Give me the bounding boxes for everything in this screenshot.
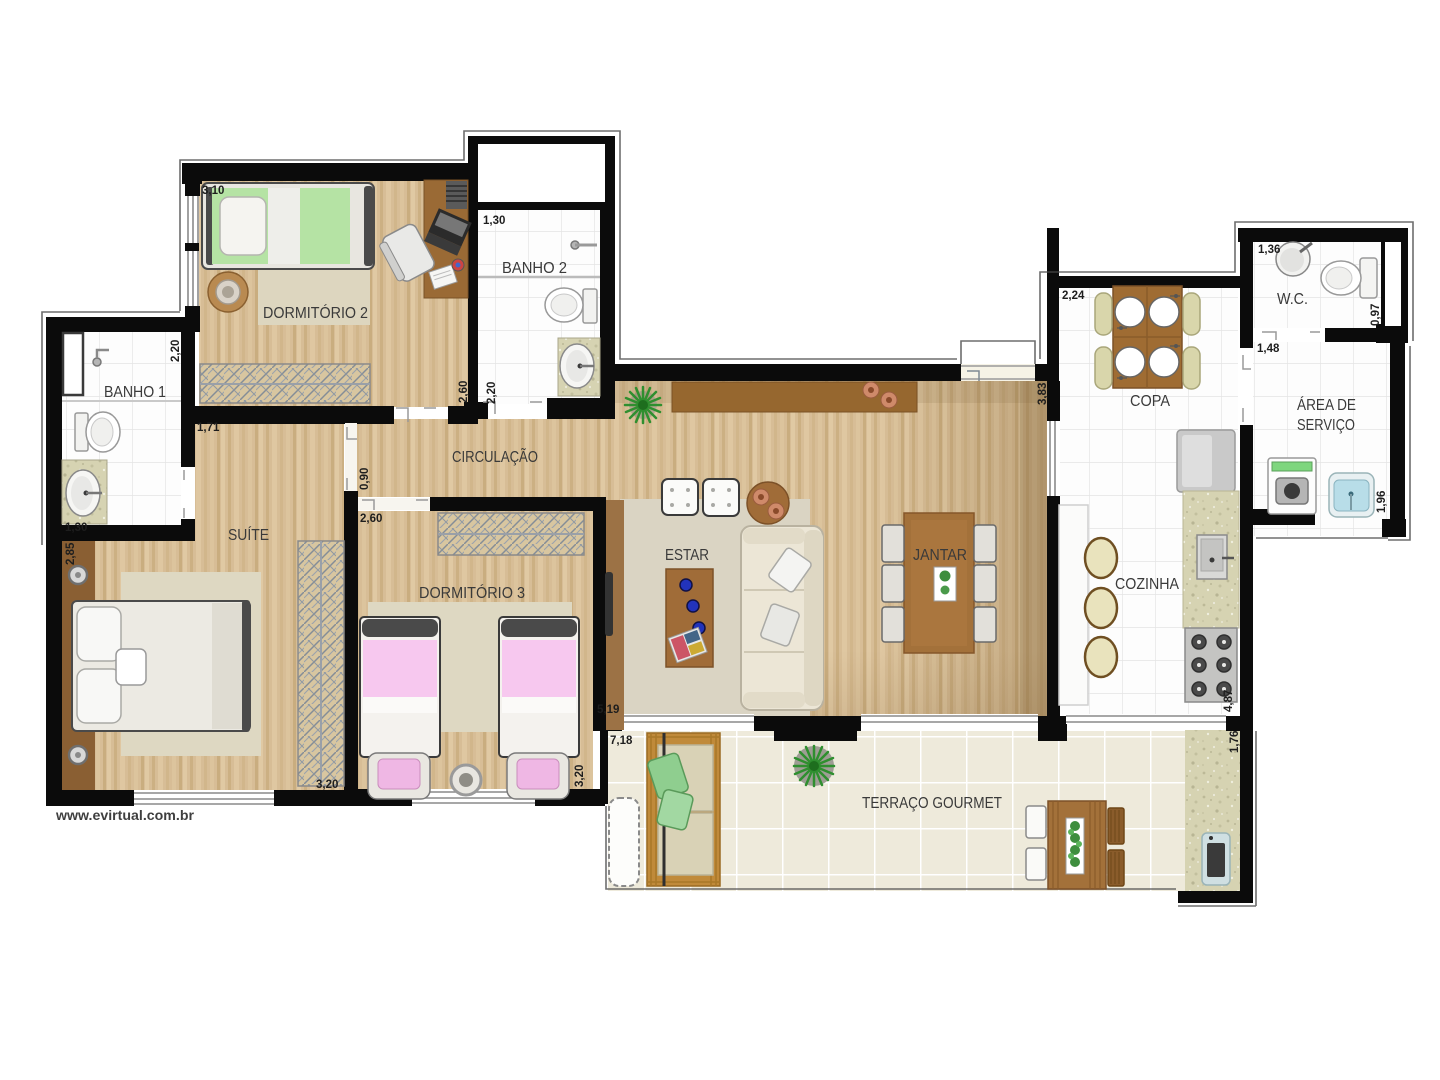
svg-text:1,30: 1,30 — [65, 522, 87, 534]
svg-text:1,36: 1,36 — [1258, 244, 1280, 256]
svg-text:2,20: 2,20 — [170, 340, 182, 362]
svg-text:TERRAÇO GOURMET: TERRAÇO GOURMET — [862, 795, 1002, 812]
svg-text:0,97: 0,97 — [1370, 304, 1382, 326]
svg-text:7,18: 7,18 — [610, 735, 633, 747]
svg-text:SERVIÇO: SERVIÇO — [1297, 417, 1355, 434]
svg-text:BANHO 2: BANHO 2 — [502, 260, 567, 277]
svg-text:1,30: 1,30 — [483, 215, 505, 227]
svg-text:SUÍTE: SUÍTE — [228, 527, 269, 544]
svg-text:DORMITÓRIO 3: DORMITÓRIO 3 — [419, 585, 525, 602]
svg-text:W.C.: W.C. — [1277, 291, 1308, 308]
svg-text:COZINHA: COZINHA — [1115, 576, 1180, 593]
svg-text:CIRCULAÇÃO: CIRCULAÇÃO — [452, 449, 538, 466]
svg-text:ESTAR: ESTAR — [665, 547, 709, 564]
svg-text:1,48: 1,48 — [1257, 343, 1280, 355]
svg-text:0,90: 0,90 — [359, 468, 371, 490]
svg-text:3,10: 3,10 — [202, 185, 224, 197]
svg-text:1,96: 1,96 — [1376, 491, 1388, 513]
svg-text:2,85: 2,85 — [65, 542, 77, 565]
svg-text:3,20: 3,20 — [574, 765, 586, 787]
svg-text:3,83: 3,83 — [1037, 383, 1049, 405]
svg-text:5,19: 5,19 — [597, 704, 619, 716]
svg-text:1,76: 1,76 — [1229, 731, 1241, 753]
svg-text:1,71: 1,71 — [197, 422, 220, 434]
svg-text:4,87: 4,87 — [1223, 690, 1235, 712]
svg-text:COPA: COPA — [1130, 393, 1171, 410]
svg-text:ÁREA DE: ÁREA DE — [1297, 397, 1356, 414]
svg-text:JANTAR: JANTAR — [913, 547, 967, 564]
svg-text:3,20: 3,20 — [316, 779, 338, 791]
svg-text:2,24: 2,24 — [1062, 290, 1085, 302]
svg-text:www.evirtual.com.br: www.evirtual.com.br — [55, 808, 195, 823]
svg-text:2,60: 2,60 — [458, 381, 470, 403]
svg-text:2,20: 2,20 — [486, 382, 498, 404]
svg-text:DORMITÓRIO 2: DORMITÓRIO 2 — [263, 305, 368, 322]
svg-text:2,60: 2,60 — [360, 513, 382, 525]
svg-text:BANHO 1: BANHO 1 — [104, 384, 166, 401]
